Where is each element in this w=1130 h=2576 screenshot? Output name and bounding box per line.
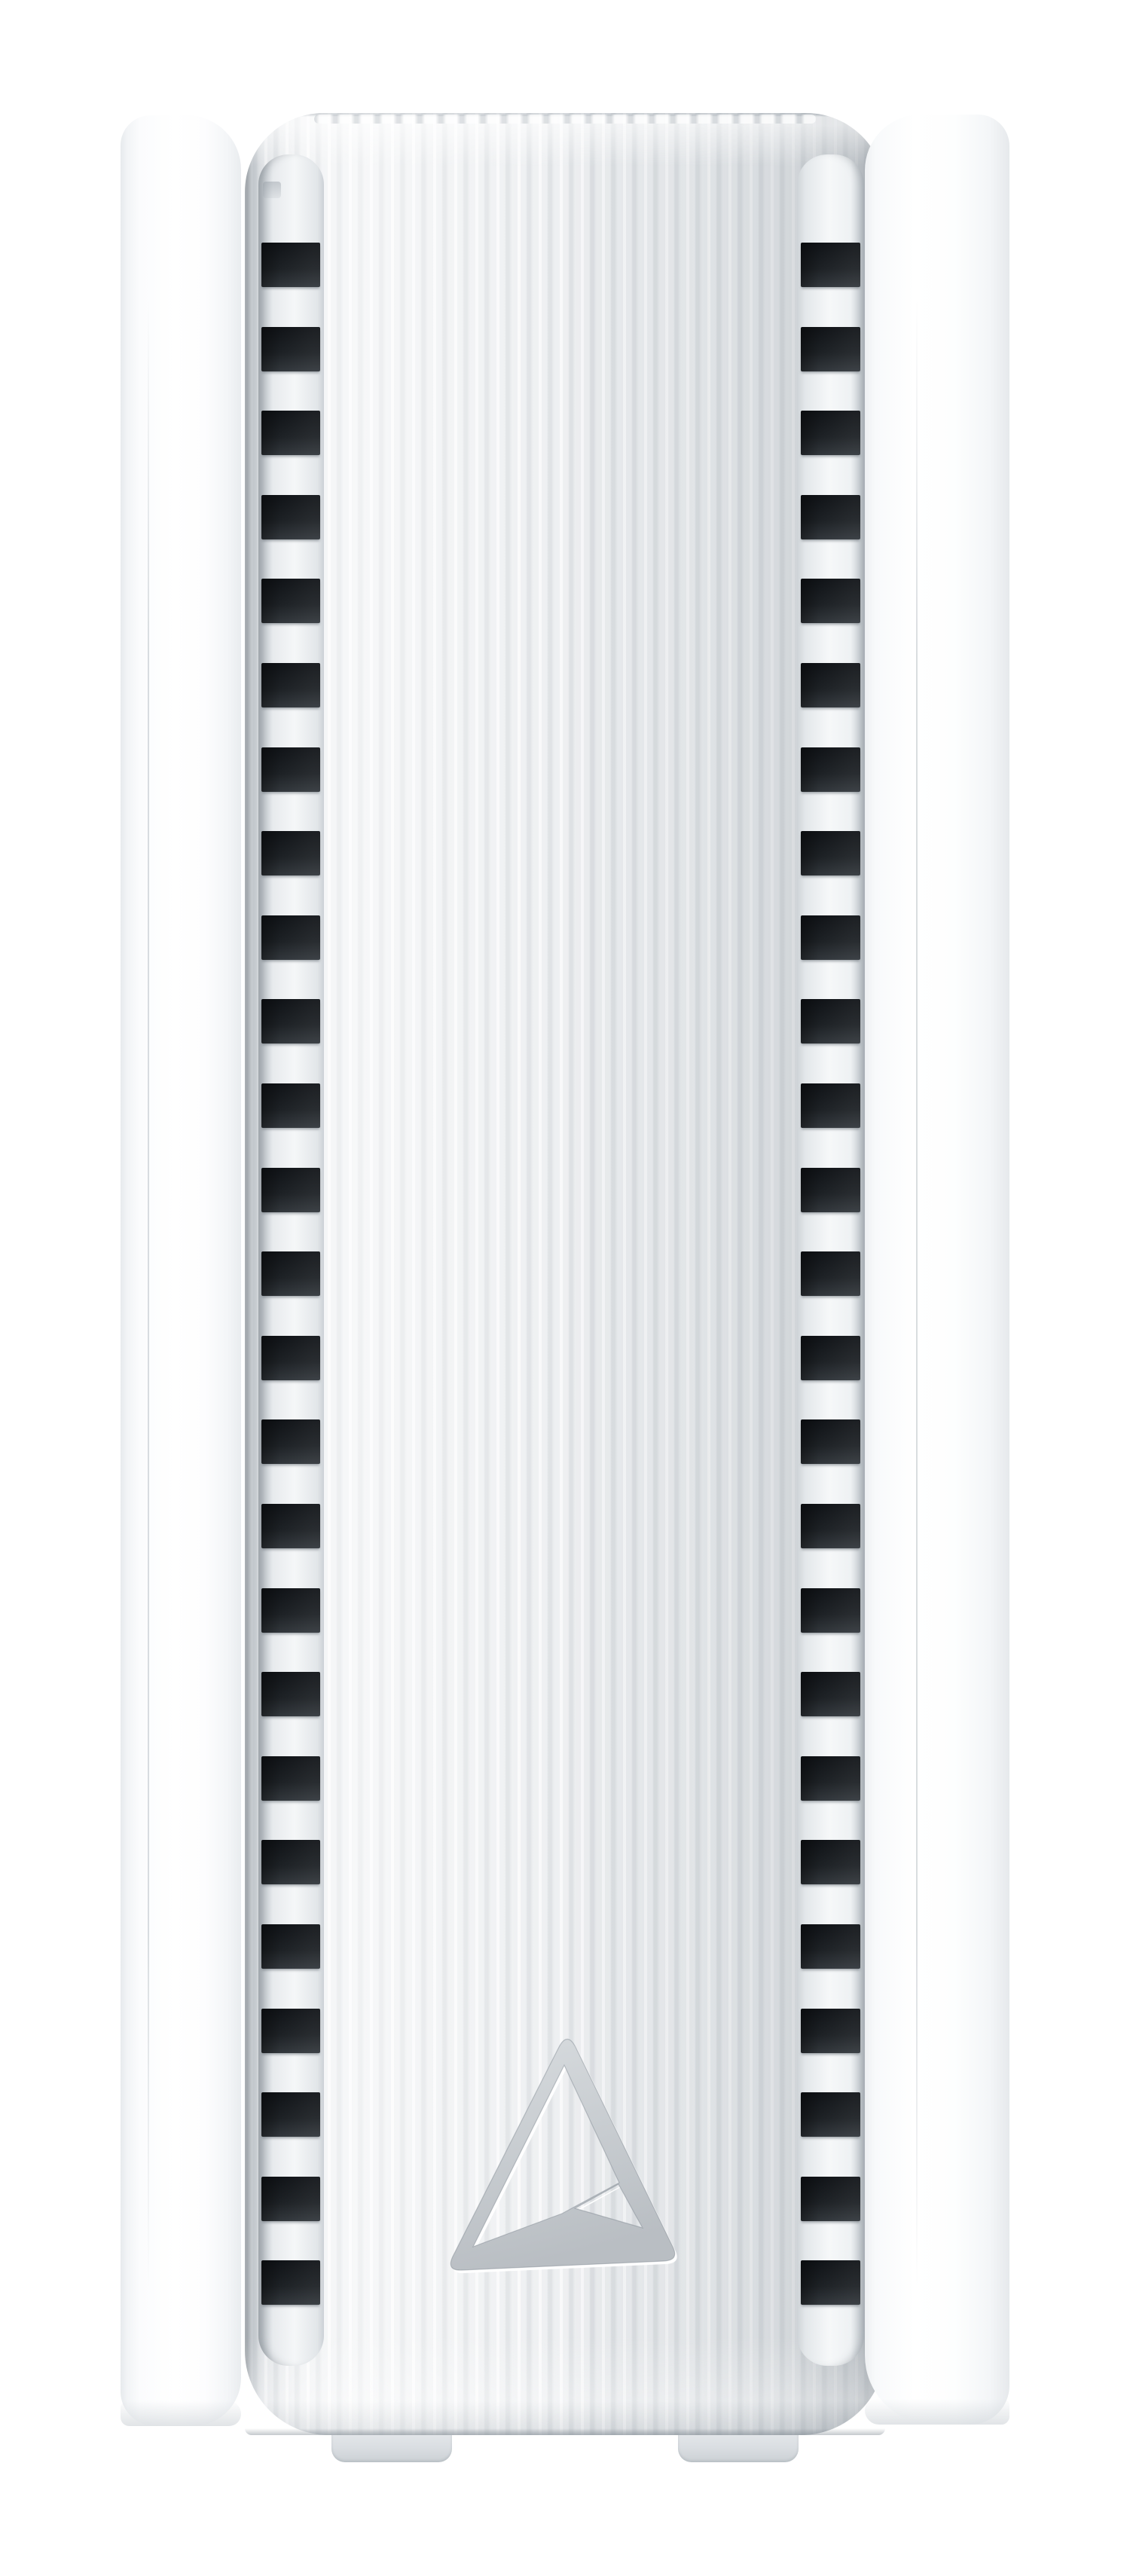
- vent-slot: [261, 2260, 320, 2305]
- vent-slot: [261, 2009, 320, 2053]
- vent-slot: [801, 1083, 860, 1128]
- vent-slot: [261, 1168, 320, 1212]
- vent-slot: [801, 747, 860, 792]
- vent-slot: [261, 1588, 320, 1633]
- vent-slot: [261, 1504, 320, 1548]
- vent-slot: [261, 1419, 320, 1464]
- vent-slot: [261, 1924, 320, 1969]
- vent-slot: [801, 579, 860, 623]
- vent-slot: [801, 1588, 860, 1633]
- product-photo-mesh-wifi-node: [0, 0, 1130, 2576]
- vent-slot: [261, 243, 320, 287]
- vent-slot: [801, 411, 860, 455]
- vent-column-right: [797, 154, 864, 2366]
- vent-slot: [801, 1672, 860, 1716]
- right-side-pillar: [865, 115, 1009, 2425]
- pillar-bottom-shade: [865, 2399, 1009, 2425]
- vent-slot: [801, 1168, 860, 1212]
- vent-slot: [801, 1504, 860, 1548]
- vent-slot: [261, 579, 320, 623]
- vent-slot: [261, 747, 320, 792]
- pillar-seam-line: [916, 299, 918, 2286]
- left-side-pillar: [121, 115, 241, 2426]
- vent-slot: [801, 1840, 860, 1884]
- vent-slot: [801, 495, 860, 539]
- vent-slot: [261, 1251, 320, 1296]
- vent-slot: [801, 2092, 860, 2137]
- vent-slot: [261, 1840, 320, 1884]
- vent-slot: [261, 663, 320, 707]
- vent-slot: [261, 831, 320, 875]
- vent-slot: [801, 999, 860, 1044]
- vent-slot: [801, 1756, 860, 1801]
- vent-slot: [261, 999, 320, 1044]
- vent-slot: [261, 2177, 320, 2221]
- vent-slot: [261, 1336, 320, 1380]
- vent-slot: [801, 1419, 860, 1464]
- vent-slot: [801, 327, 860, 371]
- panel-bottom-edge: [245, 2428, 885, 2435]
- vent-slot: [801, 2177, 860, 2221]
- pillar-bottom-shade: [121, 2400, 241, 2426]
- vent-slot: [261, 1756, 320, 1801]
- pillar-seam-line: [148, 300, 149, 2287]
- vent-slot: [801, 1924, 860, 1969]
- panel-top-scallops: [314, 115, 816, 124]
- vent-slot: [801, 915, 860, 960]
- vent-slot: [261, 1083, 320, 1128]
- vent-slot: [261, 1672, 320, 1716]
- vent-slot: [801, 831, 860, 875]
- vent-slot: [261, 411, 320, 455]
- vent-slot: [801, 243, 860, 287]
- vent-slot: [801, 1336, 860, 1380]
- vent-slot: [801, 2009, 860, 2053]
- vent-slot: [801, 1251, 860, 1296]
- vent-slot: [801, 2260, 860, 2305]
- vent-slot: [801, 663, 860, 707]
- paper-plane-triangle-logo-icon: [392, 1989, 723, 2306]
- vent-slot: [261, 327, 320, 371]
- vent-slot: [261, 495, 320, 539]
- vent-slot: [261, 2092, 320, 2137]
- vent-column-left: [258, 154, 324, 2366]
- vent-slot: [261, 915, 320, 960]
